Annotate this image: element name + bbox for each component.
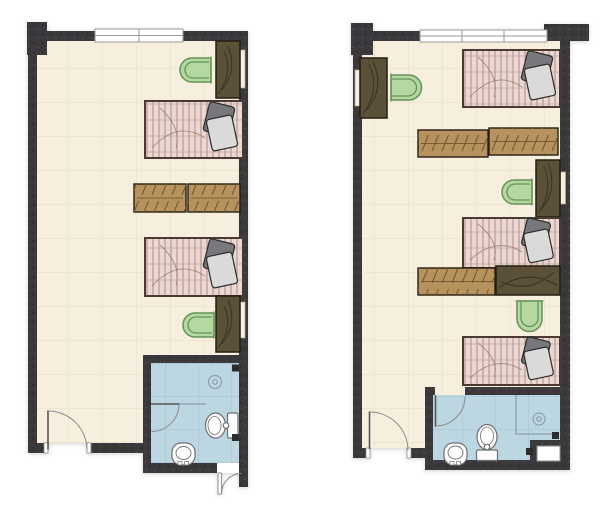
corner-drain-mark (232, 434, 239, 441)
floor-plan-right (351, 23, 589, 470)
bed (463, 336, 560, 385)
bathroom-wall-top (465, 387, 560, 395)
washbasin (172, 443, 195, 465)
desk-dark (496, 266, 560, 295)
wall-bottom-b (91, 443, 151, 453)
bathroom-wall-top-stub (425, 387, 435, 395)
bathroom-tile-grid (151, 363, 239, 463)
wall-right (560, 31, 570, 470)
washbasin (444, 443, 467, 465)
door-leaf (218, 473, 222, 494)
desk-dark (360, 58, 387, 118)
desk-dark (216, 41, 240, 98)
floor-plans-svg (0, 0, 607, 507)
corner-drain-mark (526, 448, 533, 455)
bathroom-wall-left (425, 387, 433, 470)
floor-plan-canvas (0, 0, 607, 507)
desk-dark (216, 296, 240, 352)
bed (463, 50, 560, 107)
chair (516, 301, 544, 332)
desk-tan (418, 268, 495, 295)
door-swing-arc (222, 474, 242, 494)
wall-bottom-a (28, 443, 44, 453)
service-shaft (537, 446, 560, 461)
desk-tan (188, 184, 240, 212)
wall-left (28, 41, 37, 453)
bed (463, 218, 560, 268)
door-jamb (87, 443, 91, 453)
bathroom-wall-top (143, 355, 248, 363)
window (420, 30, 547, 42)
desk-tan (134, 184, 186, 212)
bathroom-wall-left (143, 363, 151, 473)
exterior-door (217, 463, 242, 494)
bed (145, 238, 243, 296)
corner-drain-mark (232, 365, 239, 372)
floor-plan-left (27, 22, 248, 494)
window (95, 29, 183, 42)
wall-niche (561, 172, 566, 204)
corner-drain-mark (552, 432, 559, 439)
door-jamb (366, 448, 370, 458)
bed (145, 101, 243, 158)
desk-tan (418, 130, 488, 157)
chair (502, 179, 532, 206)
doorway (217, 463, 239, 473)
wall-bottom-a (353, 448, 367, 458)
desk-tan (489, 128, 558, 155)
toilet (477, 425, 498, 461)
pillow (523, 347, 553, 381)
chair (180, 57, 211, 84)
chair (391, 74, 422, 102)
desk-dark (536, 160, 560, 217)
chair (183, 312, 214, 339)
pillow (523, 229, 554, 264)
